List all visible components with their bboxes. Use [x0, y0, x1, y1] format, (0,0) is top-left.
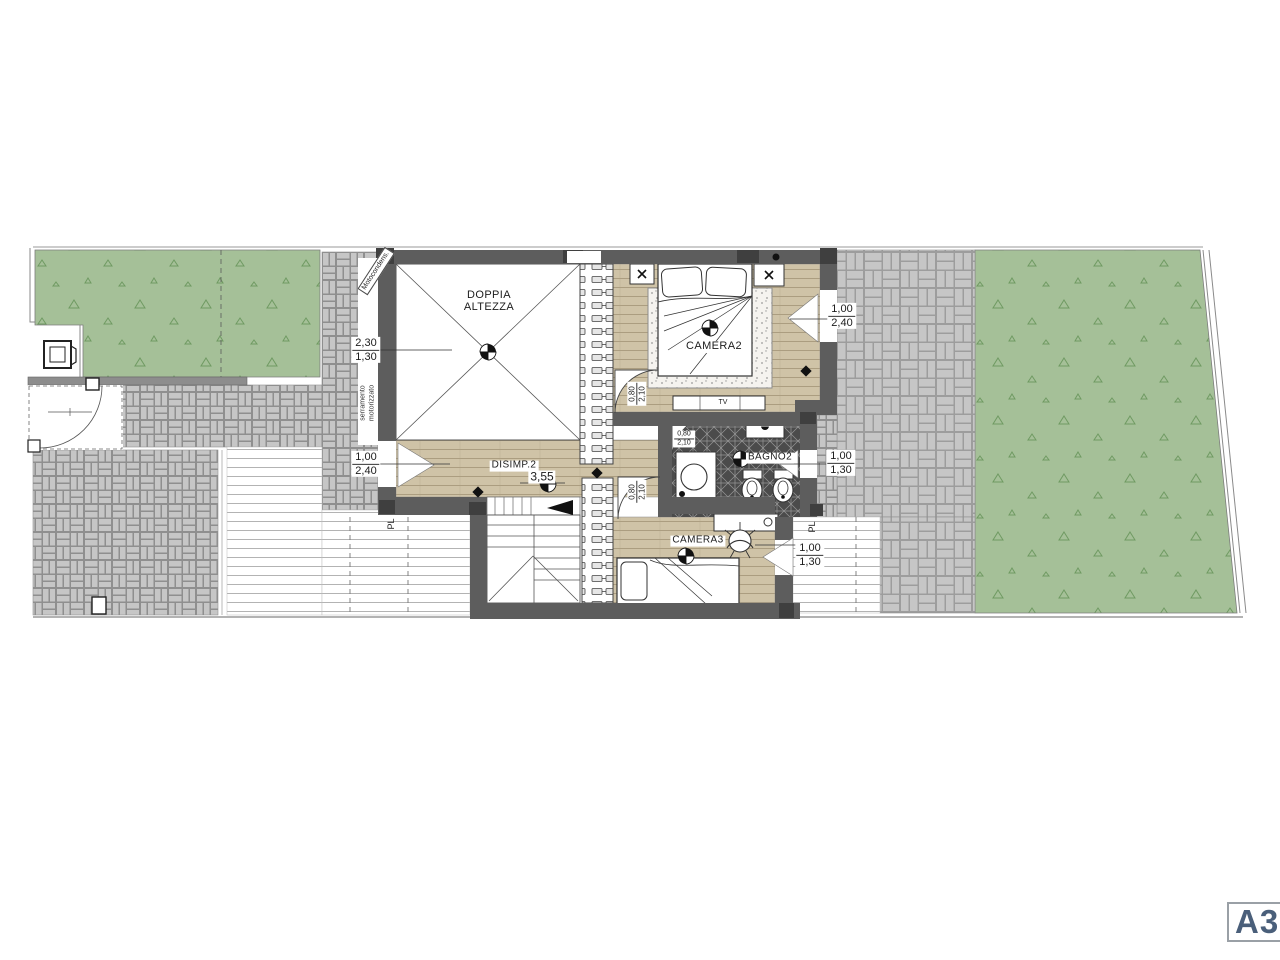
dim-h: 2,10	[638, 386, 647, 402]
dim-h: 2,40	[831, 317, 852, 330]
doppia-line2: ALTEZZA	[464, 302, 514, 314]
nightstand-right	[754, 264, 784, 286]
dim-w: 2,30	[352, 337, 379, 351]
dim-w: 1,00	[796, 542, 823, 556]
camera3-bed	[617, 558, 739, 604]
camera2-bed	[658, 264, 752, 376]
dim-window-100x240-left: 1,00 2,40	[351, 451, 380, 477]
sink	[676, 452, 716, 500]
serramento-line1: serramento	[359, 385, 368, 420]
dim-w: 1,00	[827, 450, 854, 464]
dim-disimp2-width: 3,55	[528, 471, 555, 484]
floorplan-sheet: DOPPIA ALTEZZA CAMERA2 BAGNO2 CAMERA3 DI…	[0, 0, 1280, 960]
desk	[714, 514, 778, 531]
dim-w: 1,00	[352, 451, 379, 465]
dim-h: 2,40	[355, 465, 376, 478]
serramento-line2: motorizzato	[368, 385, 377, 421]
dim-window-100x130-bagno: 1,00 1,30	[826, 450, 855, 476]
dim-h: 2,10	[638, 484, 647, 500]
room-label-camera3: CAMERA3	[670, 536, 725, 547]
annotation-pl-right: PL	[808, 521, 818, 532]
dim-door-camera3: 0,80 2,10	[627, 480, 646, 504]
annotation-serramento: serramento motorizzato	[359, 385, 377, 421]
dim-window-100x130-camera3: 1,00 1,30	[795, 542, 824, 568]
left-garden	[35, 250, 320, 377]
nightstand-left	[630, 264, 654, 284]
right-garden	[975, 250, 1237, 613]
annotation-pl-left: PL	[387, 518, 397, 529]
sheet-label-box: A3	[1227, 902, 1280, 942]
dim-door-camera2: 0,80 2,10	[627, 382, 646, 406]
sheet-label: A3	[1235, 903, 1279, 941]
tv-label: TV	[719, 399, 728, 407]
room-label-bagno2: BAGNO2	[746, 453, 794, 464]
dim-w: 1,00	[828, 303, 855, 317]
dim-h: 2,10	[677, 440, 691, 448]
wardrobe-lower	[582, 478, 613, 603]
toilet	[773, 470, 793, 502]
dim-door-bagno2: 0,80 2,10	[673, 430, 695, 447]
dim-w: 0,80	[627, 481, 637, 503]
wardrobe-upper	[580, 264, 613, 464]
room-label-camera2: CAMERA2	[684, 341, 744, 353]
dim-window-230x130: 2,30 1,30	[351, 337, 380, 363]
perimeter-fence	[28, 377, 247, 385]
dim-h: 1,30	[799, 556, 820, 569]
dim-h: 1,30	[830, 464, 851, 477]
dim-window-100x240-right: 1,00 2,40	[827, 303, 856, 329]
dim-h: 1,30	[355, 351, 376, 364]
dim-w: 0,80	[674, 430, 694, 439]
dim-w: 0,80	[627, 383, 637, 405]
room-label-doppia-altezza: DOPPIA ALTEZZA	[464, 290, 514, 314]
condenser-unit	[44, 341, 76, 368]
stairs	[487, 497, 580, 603]
